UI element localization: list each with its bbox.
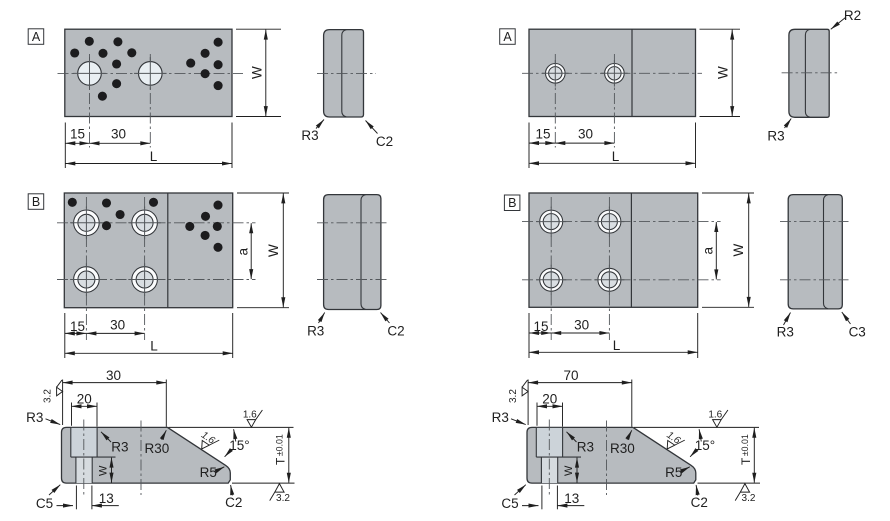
svg-text:30: 30 [110,318,125,333]
svg-text:30: 30 [574,318,589,333]
svg-text:R30: R30 [610,441,635,456]
svg-text:B: B [508,196,516,210]
svg-text:C2: C2 [387,324,404,339]
svg-text:R3: R3 [492,410,509,425]
svg-text:A: A [32,30,41,44]
svg-text:30: 30 [106,368,121,383]
svg-text:R30: R30 [145,441,170,456]
svg-text:15°: 15° [695,438,715,453]
svg-text:3.2: 3.2 [742,493,756,504]
svg-text:1.6: 1.6 [708,409,722,420]
svg-text:W: W [716,66,731,79]
svg-text:R5: R5 [665,465,682,480]
svg-text:3.2: 3.2 [508,389,519,403]
svg-text:a: a [236,248,251,256]
svg-text:C3: C3 [849,325,866,340]
svg-text:C2: C2 [691,495,708,510]
svg-text:L: L [612,149,620,164]
svg-text:a: a [701,247,716,255]
svg-text:20: 20 [542,391,557,406]
svg-text:R3: R3 [777,325,794,340]
svg-text:R2: R2 [844,8,861,23]
svg-text:13: 13 [99,491,114,506]
svg-text:30: 30 [578,127,593,142]
svg-text:15: 15 [533,319,548,334]
svg-text:C5: C5 [501,496,518,511]
svg-text:R3: R3 [111,439,128,454]
svg-text:70: 70 [563,368,578,383]
svg-text:R3: R3 [26,410,43,425]
svg-text:W: W [266,244,281,257]
svg-text:C5: C5 [36,496,53,511]
svg-text:R3: R3 [577,439,594,454]
svg-text:R5: R5 [200,465,217,480]
svg-text:C2: C2 [376,134,393,149]
svg-text:15°: 15° [229,438,249,453]
svg-text:R3: R3 [301,128,318,143]
svg-text:L: L [613,338,621,353]
svg-text:R3: R3 [307,324,324,339]
svg-text:15: 15 [535,127,550,142]
svg-text:W: W [249,66,264,79]
svg-text:20: 20 [77,391,92,406]
svg-text:30: 30 [111,127,126,142]
svg-text:3.2: 3.2 [276,493,290,504]
svg-text:W: W [731,244,746,257]
svg-text:C2: C2 [225,495,242,510]
svg-text:13: 13 [564,491,579,506]
svg-text:A: A [503,30,512,44]
svg-text:R3: R3 [767,128,784,143]
svg-text:15: 15 [70,319,85,334]
svg-text:3.2: 3.2 [42,389,53,403]
svg-text:W: W [563,465,575,476]
svg-text:W: W [98,465,110,476]
svg-text:L: L [150,339,158,354]
svg-text:15: 15 [70,127,85,142]
svg-text:B: B [32,195,40,209]
svg-text:1.6: 1.6 [243,409,257,420]
svg-text:L: L [150,149,158,164]
